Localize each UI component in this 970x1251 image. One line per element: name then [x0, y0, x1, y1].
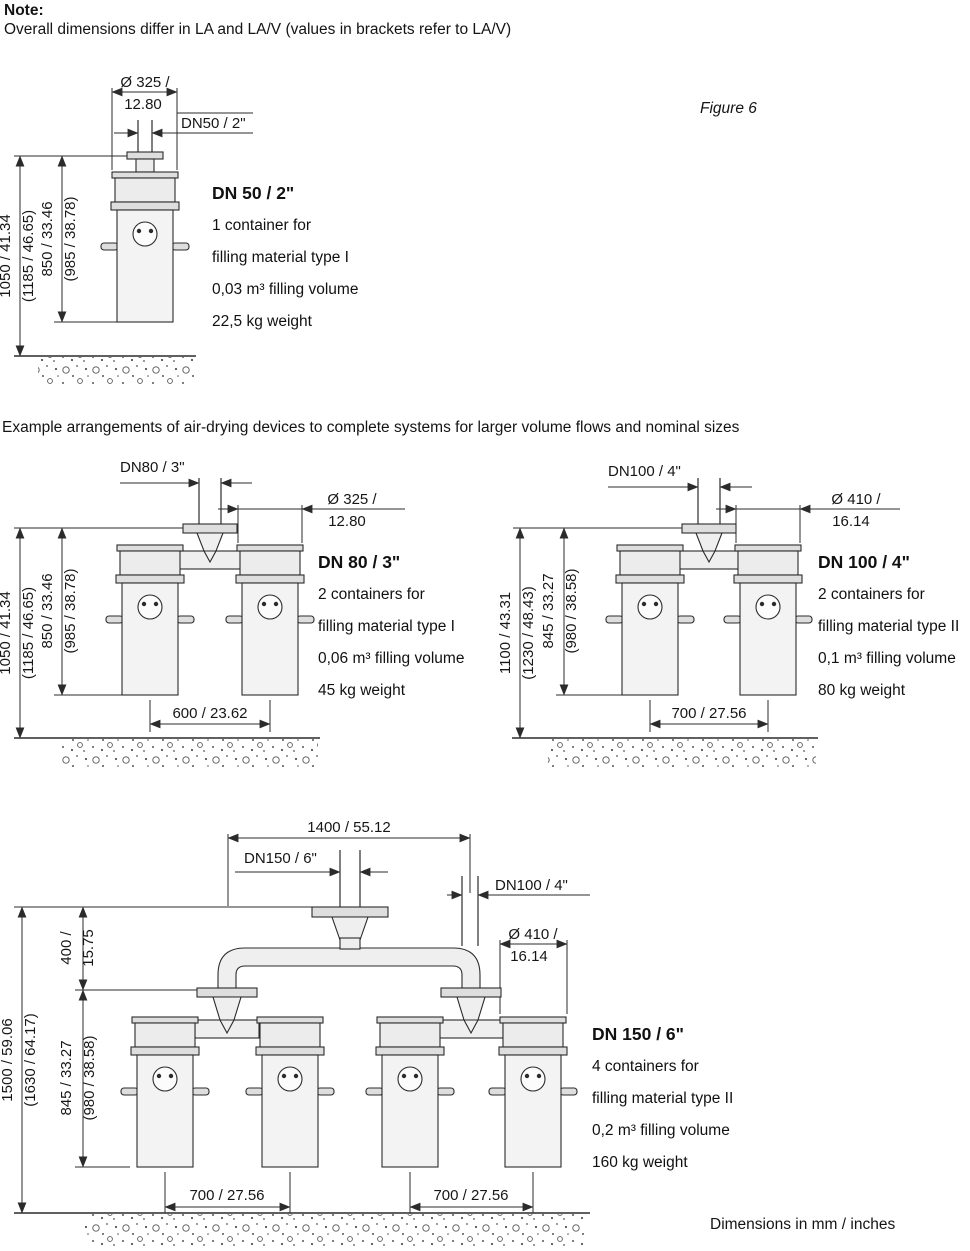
dim-diameter-line2: 12.80: [328, 513, 366, 530]
dim-diameter-line2: 16.14: [510, 948, 548, 965]
spec-title-dn100: DN 100 / 4": [818, 552, 959, 573]
dim-diameter-line2: 12.80: [124, 96, 162, 113]
container-glyph: [101, 172, 189, 322]
dim-spacing-left: 700 / 27.56: [189, 1187, 264, 1204]
dim-total-height: 1500 / 59.06: [0, 1018, 16, 1101]
dim-total-height-alt: (1185 / 46.65): [20, 210, 37, 302]
dim-body-height-alt: (985 / 38.78): [62, 196, 79, 281]
tee-manifold: [678, 524, 740, 569]
dim-branch: DN100 / 4": [495, 877, 568, 894]
spec-line: 2 containers for: [818, 579, 959, 611]
spec-line: 0,03 m³ filling volume: [212, 274, 358, 306]
dim-total-height-alt: (1630 / 64.17): [22, 1013, 39, 1106]
dim-body-height-alt: (980 / 38.58): [81, 1035, 98, 1120]
dim-nominal: DN50 / 2": [181, 115, 246, 132]
spec-line: 0,06 m³ filling volume: [318, 643, 464, 675]
dim-diameter-line1: Ø 410 /: [508, 926, 558, 943]
spec-line: filling material type II: [818, 611, 959, 643]
dim-overall-width: 1400 / 55.12: [307, 819, 390, 836]
intro-text: Example arrangements of air-drying devic…: [2, 419, 739, 437]
dim-total-height-alt: (1230 / 48.43): [520, 586, 537, 679]
ground-hatch: [85, 1214, 585, 1247]
dim-diameter-line1: Ø 325 /: [327, 491, 377, 508]
inlet-flange: [127, 152, 163, 159]
spec-block-dn100: DN 100 / 4" 2 containers for filling mat…: [818, 552, 959, 707]
spec-title-dn50: DN 50 / 2": [212, 183, 358, 204]
dim-body-height-alt: (985 / 38.78): [62, 568, 79, 653]
ground-hatch: [60, 739, 318, 767]
spec-line: filling material type I: [318, 611, 464, 643]
footer-units-note: Dimensions in mm / inches: [710, 1216, 895, 1234]
container-glyph: [246, 1017, 334, 1167]
dim-nominal: DN150 / 6": [244, 850, 317, 867]
ground-hatch: [548, 739, 816, 767]
inlet-flange: [312, 907, 388, 917]
tee-manifold: [439, 988, 503, 1038]
dim-spacing-right: 700 / 27.56: [433, 1187, 508, 1204]
container-glyph: [489, 1017, 577, 1167]
ground-hatch: [38, 357, 196, 385]
spec-title-dn80: DN 80 / 3": [318, 552, 464, 573]
spec-block-dn80: DN 80 / 3" 2 containers for filling mate…: [318, 552, 464, 707]
spec-line: 45 kg weight: [318, 675, 464, 707]
spec-line: 0,1 m³ filling volume: [818, 643, 959, 675]
note-title: Note:: [4, 2, 44, 20]
dim-total-height: 1050 / 41.34: [0, 214, 14, 297]
inlet-neck: [136, 159, 154, 172]
figure-dn150: 1400 / 55.12 DN150 / 6" DN100 / 4" Ø 410…: [0, 819, 590, 1247]
page: Ø 325 / 12.80 DN50 / 2" 1050 / 41.34 (11…: [0, 0, 970, 1251]
dim-spacing: 600 / 23.62: [172, 705, 247, 722]
dim-diameter-line1: Ø 325 /: [120, 74, 170, 91]
inlet-stem: [340, 938, 360, 949]
dim-body-height: 845 / 33.27: [540, 573, 557, 648]
dim-nominal: DN80 / 3": [120, 459, 185, 476]
spec-line: 0,2 m³ filling volume: [592, 1115, 733, 1147]
spec-line: 80 kg weight: [818, 675, 959, 707]
tee-manifold: [195, 988, 259, 1038]
dim-nominal: DN100 / 4": [608, 463, 681, 480]
spec-line: 160 kg weight: [592, 1147, 733, 1179]
spec-line: 1 container for: [212, 210, 358, 242]
spec-block-dn150: DN 150 / 6" 4 containers for filling mat…: [592, 1024, 733, 1179]
figure-label: Figure 6: [700, 100, 757, 118]
container-glyph: [121, 1017, 209, 1167]
spec-line: 2 containers for: [318, 579, 464, 611]
dim-diameter-line2: 16.14: [832, 513, 870, 530]
dim-spacing: 700 / 27.56: [671, 705, 746, 722]
dim-total-height: 1050 / 41.34: [0, 591, 14, 674]
dim-total-height: 1100 / 43.31: [497, 592, 514, 674]
dim-body-height-alt: (980 / 38.58): [563, 568, 580, 653]
dim-riser-line2: 15.75: [80, 929, 97, 967]
spec-line: 4 containers for: [592, 1051, 733, 1083]
dim-body-height: 845 / 33.27: [58, 1040, 75, 1115]
inlet-funnel: [332, 917, 368, 940]
dim-body-height: 850 / 33.46: [39, 573, 56, 648]
dim-riser-line1: 400 /: [58, 930, 75, 964]
container-glyph: [366, 1017, 454, 1167]
dim-body-height: 850 / 33.46: [39, 201, 56, 276]
spec-line: filling material type II: [592, 1083, 733, 1115]
spec-title-dn150: DN 150 / 6": [592, 1024, 733, 1045]
spec-block-dn50: DN 50 / 2" 1 container for filling mater…: [212, 183, 358, 338]
spec-line: filling material type I: [212, 242, 358, 274]
dim-diameter-line1: Ø 410 /: [831, 491, 881, 508]
dim-total-height-alt: (1185 / 46.65): [20, 587, 37, 679]
note-body: Overall dimensions differ in LA and LA/V…: [4, 21, 511, 39]
spec-line: 22,5 kg weight: [212, 306, 358, 338]
tee-manifold: [179, 524, 241, 569]
